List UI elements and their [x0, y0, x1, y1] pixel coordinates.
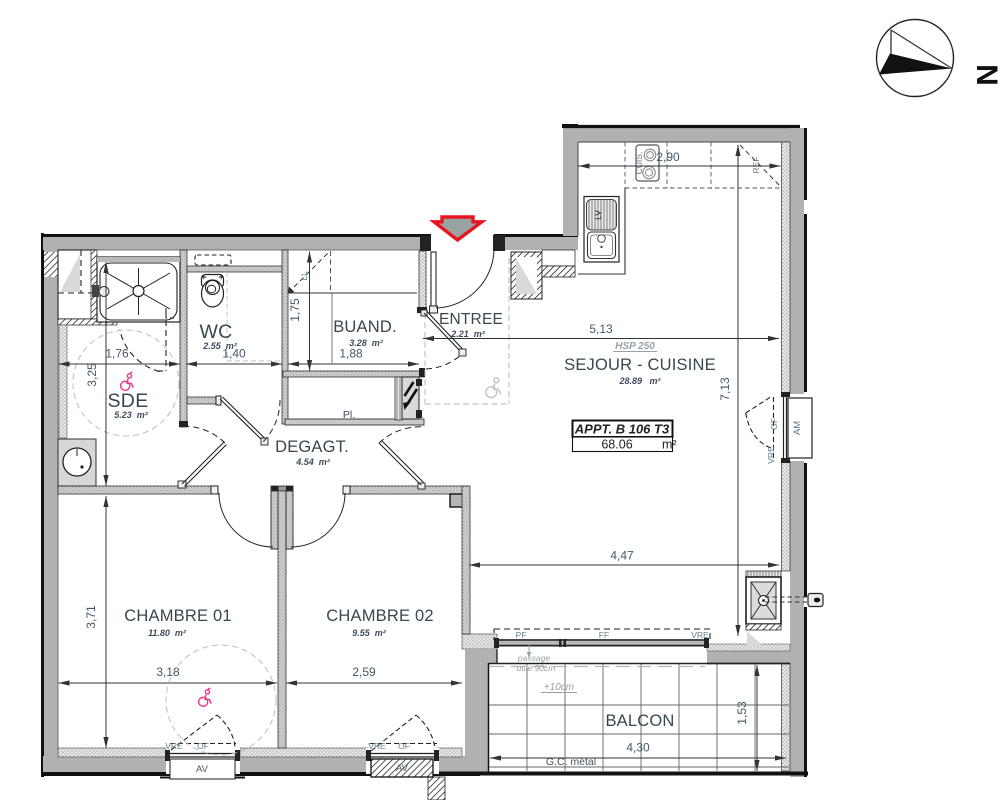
svg-text:FF: FF: [599, 630, 609, 640]
svg-text:3,71: 3,71: [84, 605, 98, 629]
svg-text:BALCON: BALCON: [605, 712, 674, 730]
svg-text:VRE: VRE: [368, 741, 386, 751]
svg-text:SEJOUR - CUISINE: SEJOUR - CUISINE: [564, 356, 716, 374]
svg-text:DEGAGT.: DEGAGT.: [275, 438, 349, 456]
svg-text:utile 90cm: utile 90cm: [517, 663, 556, 673]
svg-text:m²: m²: [662, 438, 677, 452]
svg-text:OF: OF: [769, 418, 779, 430]
svg-text:VRE: VRE: [691, 630, 709, 640]
svg-text:OF: OF: [398, 741, 410, 751]
svg-text:28.89 m²: 28.89 m²: [618, 376, 661, 386]
svg-text:5.23 m²: 5.23 m²: [114, 410, 149, 420]
svg-text:REF: REF: [751, 157, 761, 174]
svg-text:N: N: [970, 64, 1002, 86]
svg-text:passage: passage: [517, 653, 550, 663]
svg-text:2,90: 2,90: [656, 150, 680, 164]
svg-text:11.80 m²: 11.80 m²: [148, 628, 187, 638]
svg-text:2.55 m²: 2.55 m²: [202, 341, 238, 351]
svg-text:LL: LL: [299, 271, 309, 281]
svg-text:PF: PF: [516, 630, 527, 640]
svg-text:9.55 m²: 9.55 m²: [352, 628, 387, 638]
svg-text:OF: OF: [197, 741, 209, 751]
svg-text:3,18: 3,18: [156, 665, 180, 679]
svg-text:VRE: VRE: [165, 741, 183, 751]
svg-text:VRE: VRE: [766, 446, 776, 464]
svg-text:APPT. B 106 T3: APPT. B 106 T3: [574, 422, 670, 437]
svg-text:Pl.: Pl.: [343, 409, 355, 421]
svg-text:WC: WC: [199, 321, 232, 343]
svg-text:AV: AV: [196, 764, 209, 775]
svg-text:1,53: 1,53: [735, 701, 749, 725]
svg-text:5,13: 5,13: [589, 322, 613, 336]
svg-text:ENTREE: ENTREE: [439, 311, 503, 328]
svg-text:LV: LV: [593, 210, 603, 220]
svg-text:+10cm: +10cm: [544, 682, 574, 693]
svg-text:HSP 250: HSP 250: [615, 341, 655, 352]
svg-text:1,88: 1,88: [339, 347, 363, 361]
svg-text:2.21 m²: 2.21 m²: [450, 329, 486, 339]
svg-text:1,75: 1,75: [288, 298, 302, 322]
svg-text:CHAMBRE 01: CHAMBRE 01: [124, 607, 231, 625]
svg-text:BUAND.: BUAND.: [333, 318, 397, 336]
svg-text:3.28 m²: 3.28 m²: [349, 338, 384, 348]
svg-text:4,30: 4,30: [626, 741, 650, 755]
svg-text:CHAMBRE 02: CHAMBRE 02: [326, 607, 433, 625]
svg-text:AM: AM: [792, 421, 803, 435]
svg-text:4,47: 4,47: [610, 549, 634, 563]
svg-text:1,76: 1,76: [105, 347, 129, 361]
svg-text:7,13: 7,13: [718, 377, 732, 401]
svg-text:2,59: 2,59: [352, 665, 376, 679]
svg-text:AV: AV: [396, 763, 409, 774]
svg-text:4.54 m²: 4.54 m²: [295, 457, 331, 467]
svg-text:68.06: 68.06: [601, 438, 632, 452]
svg-text:SDE: SDE: [108, 390, 149, 412]
svg-text:3,25: 3,25: [85, 363, 99, 387]
svg-text:CUIS.: CUIS.: [634, 152, 644, 175]
